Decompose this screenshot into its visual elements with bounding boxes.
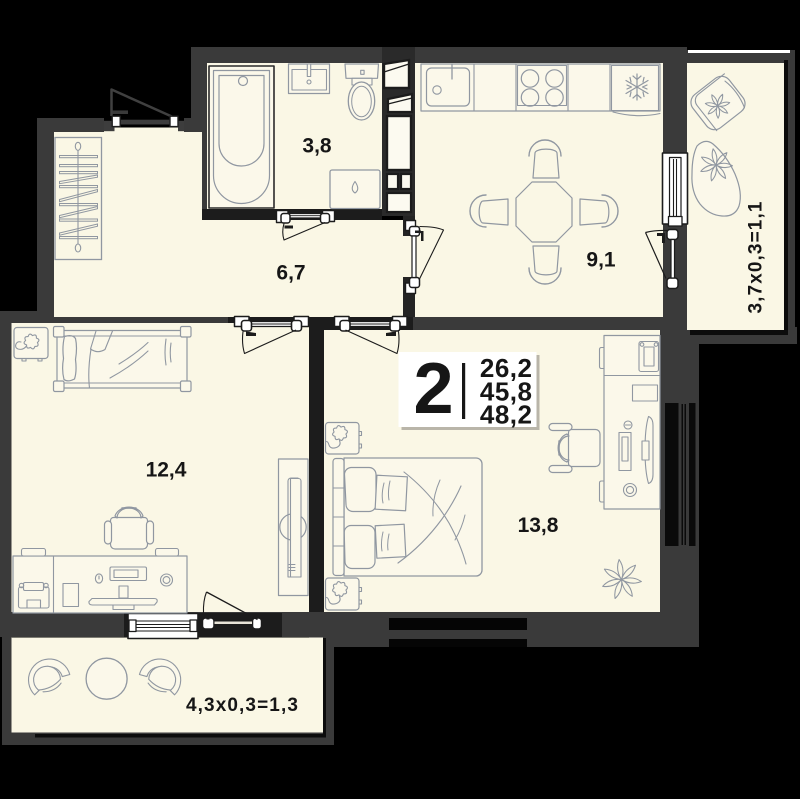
svg-text:3,7x0,3=1,1: 3,7x0,3=1,1 bbox=[746, 200, 767, 313]
svg-text:12,4: 12,4 bbox=[146, 459, 187, 482]
svg-text:48,2: 48,2 bbox=[480, 400, 533, 430]
svg-text:2: 2 bbox=[413, 349, 452, 429]
svg-text:13,8: 13,8 bbox=[518, 514, 559, 537]
svg-text:6,7: 6,7 bbox=[276, 262, 305, 285]
svg-text:3,8: 3,8 bbox=[302, 134, 332, 157]
svg-text:4,3x0,3=1,3: 4,3x0,3=1,3 bbox=[186, 695, 299, 716]
svg-text:9,1: 9,1 bbox=[586, 248, 616, 271]
